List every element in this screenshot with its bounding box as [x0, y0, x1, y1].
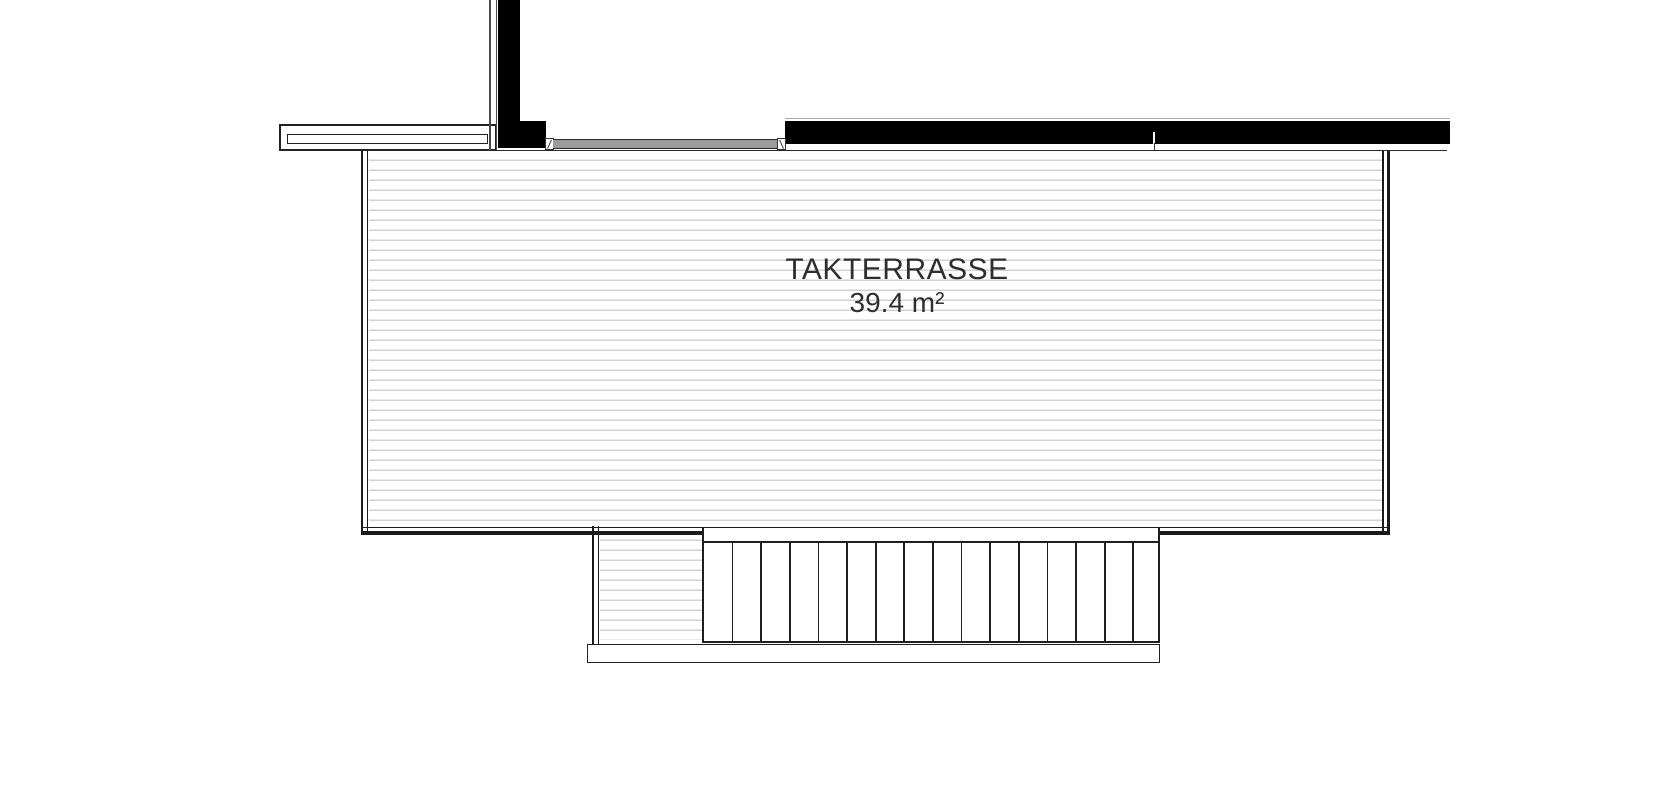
stair-opening-edge-inner [598, 526, 600, 645]
stair-riser-line [989, 541, 991, 641]
stair-riser-line [1075, 541, 1077, 641]
stair-riser-line [875, 541, 877, 641]
stair-riser-line [1047, 541, 1049, 641]
stair-top-edge [704, 541, 1158, 543]
stair-landing-strip [600, 535, 702, 644]
stair-riser-line [846, 541, 848, 641]
stair-riser-line [818, 541, 820, 641]
wall-edge-line-left [489, 0, 491, 151]
wall-top-edge-line [785, 118, 1450, 119]
terrace-deck [369, 151, 1382, 527]
stair-riser-line [1018, 541, 1020, 641]
stair-stringer [587, 644, 1160, 663]
window-jamb-right [777, 138, 786, 151]
parapet-railing [279, 124, 497, 151]
railing-left-inner [367, 151, 369, 535]
window-glazing [553, 139, 777, 149]
stair-riser-line [1104, 541, 1106, 641]
exterior-wall-vertical [498, 0, 520, 123]
stair-riser-line [961, 541, 963, 641]
railing-right-outer [1387, 151, 1390, 535]
exterior-wall-top [785, 121, 1450, 145]
exterior-wall-corner [498, 121, 546, 148]
room-label-block: TAKTERRASSE 39.4 m² [720, 253, 1074, 319]
stair-opening-edge-outer [592, 526, 594, 645]
wall-edge-line-right [496, 0, 498, 151]
room-label: TAKTERRASSE [720, 253, 1074, 286]
stairs [702, 528, 1160, 643]
stair-riser-line [903, 541, 905, 641]
railing-right-inner [1382, 151, 1384, 535]
area-label: 39.4 m² [720, 286, 1074, 319]
stair-riser-line [760, 541, 762, 641]
railing-left-outer [361, 151, 364, 535]
stair-riser-line [1132, 541, 1134, 641]
floor-plan-canvas: TAKTERRASSE 39.4 m² [0, 0, 1670, 800]
stair-riser-line [789, 541, 791, 641]
stair-riser-line [932, 541, 934, 641]
parapet-railing-inner [287, 134, 488, 144]
stair-riser-line [732, 541, 734, 641]
